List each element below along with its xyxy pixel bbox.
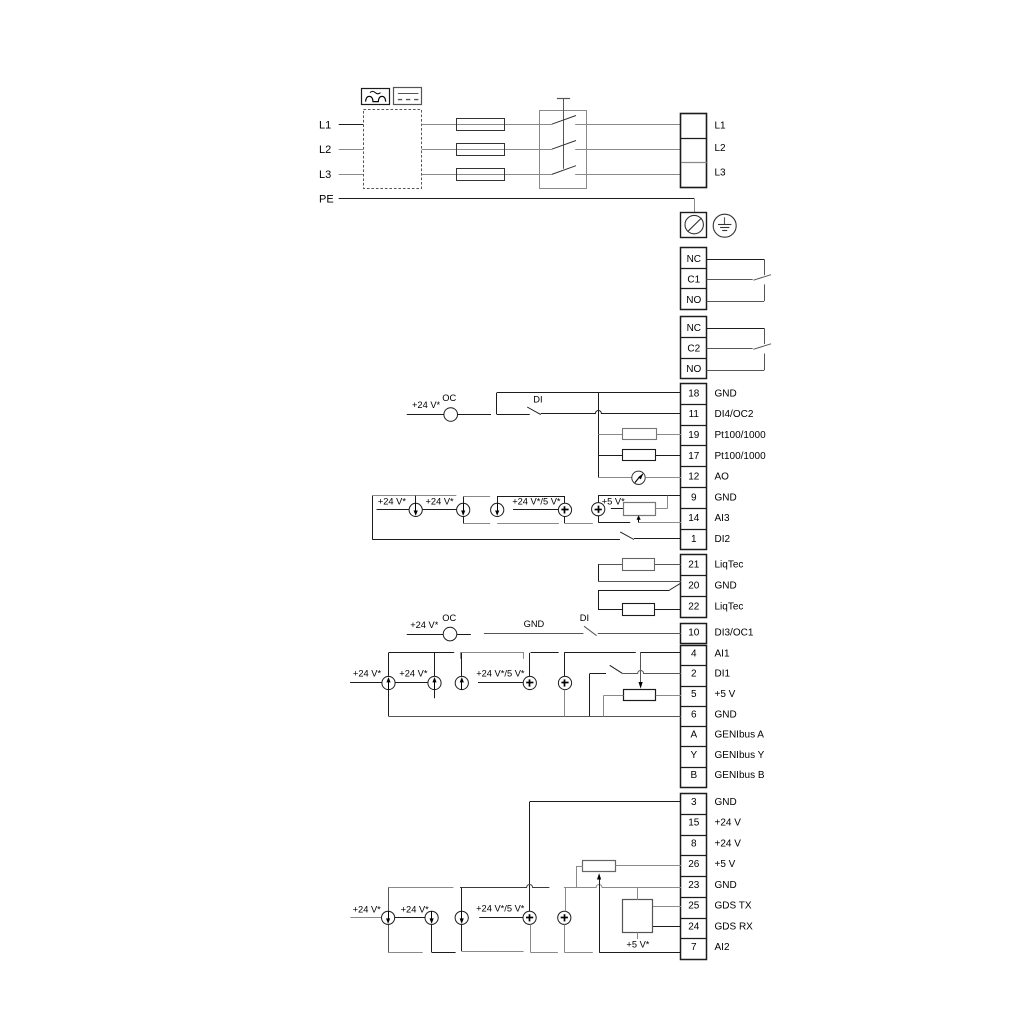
svg-text:+5 V*: +5 V* [602, 497, 625, 507]
svg-text:AO: AO [715, 472, 730, 483]
svg-text:L2: L2 [319, 144, 331, 156]
svg-text:L2: L2 [715, 143, 727, 154]
svg-text:OC: OC [442, 393, 456, 403]
svg-text:Pt100/1000: Pt100/1000 [715, 451, 767, 462]
svg-text:GND: GND [715, 388, 737, 399]
svg-text:+24 V*/5 V*: +24 V*/5 V* [476, 904, 525, 914]
svg-text:C2: C2 [687, 343, 700, 354]
svg-text:10: 10 [688, 628, 700, 639]
svg-text:C1: C1 [687, 274, 700, 285]
svg-text:GND: GND [524, 619, 545, 629]
svg-text:AI3: AI3 [715, 513, 730, 524]
svg-text:+5 V: +5 V [715, 859, 736, 870]
svg-text:+24 V*: +24 V* [410, 620, 439, 630]
svg-text:GENIbus A: GENIbus A [715, 730, 765, 741]
svg-text:15: 15 [688, 818, 700, 829]
svg-text:DI1: DI1 [715, 669, 731, 680]
svg-text:3: 3 [691, 797, 697, 808]
svg-text:21: 21 [688, 560, 700, 571]
svg-text:24: 24 [688, 921, 700, 932]
svg-text:L1: L1 [715, 120, 727, 131]
svg-text:9: 9 [691, 492, 697, 503]
svg-text:23: 23 [688, 880, 700, 891]
svg-text:+24 V*: +24 V* [353, 904, 382, 914]
svg-text:AI2: AI2 [715, 942, 730, 953]
svg-text:NO: NO [686, 295, 701, 306]
svg-text:GENIbus B: GENIbus B [715, 770, 765, 781]
svg-text:+24 V*: +24 V* [378, 496, 407, 506]
svg-text:5: 5 [691, 689, 697, 700]
svg-text:+5 V*: +5 V* [626, 940, 649, 950]
svg-text:7: 7 [691, 942, 697, 953]
svg-text:DI: DI [533, 394, 542, 404]
svg-text:+24 V*: +24 V* [399, 669, 428, 679]
svg-text:LiqTec: LiqTec [715, 601, 744, 612]
svg-text:A: A [690, 730, 697, 741]
svg-text:+24 V*: +24 V* [401, 904, 430, 914]
svg-text:GDS TX: GDS TX [715, 901, 752, 912]
svg-text:12: 12 [688, 472, 700, 483]
svg-text:+24 V*/5 V*: +24 V*/5 V* [476, 669, 525, 679]
svg-text:26: 26 [688, 859, 700, 870]
svg-text:11: 11 [689, 409, 700, 420]
svg-text:20: 20 [688, 581, 700, 592]
svg-text:DI3/OC1: DI3/OC1 [715, 628, 754, 639]
svg-text:DI2: DI2 [715, 534, 731, 545]
svg-text:AI1: AI1 [715, 648, 730, 659]
svg-text:DI4/OC2: DI4/OC2 [715, 409, 754, 420]
svg-text:NC: NC [687, 254, 701, 265]
svg-text:25: 25 [688, 901, 700, 912]
svg-text:+24 V*: +24 V* [353, 669, 382, 679]
svg-text:Y: Y [690, 750, 697, 761]
svg-text:L3: L3 [319, 169, 331, 181]
svg-text:PE: PE [319, 193, 334, 205]
svg-text:14: 14 [688, 513, 700, 524]
svg-text:NO: NO [686, 364, 701, 375]
svg-text:6: 6 [691, 709, 697, 720]
svg-text:OC: OC [442, 613, 456, 623]
svg-text:NC: NC [687, 323, 701, 334]
svg-text:1: 1 [691, 534, 697, 545]
svg-text:DI: DI [580, 613, 589, 623]
svg-text:LiqTec: LiqTec [715, 560, 744, 571]
svg-text:+24 V: +24 V [715, 818, 742, 829]
svg-text:GDS RX: GDS RX [715, 921, 754, 932]
svg-text:+5 V: +5 V [715, 689, 736, 700]
svg-text:8: 8 [691, 838, 697, 849]
svg-text:+24 V*: +24 V* [412, 400, 441, 410]
svg-text:L3: L3 [715, 168, 727, 179]
svg-text:+24 V: +24 V [715, 838, 742, 849]
svg-text:18: 18 [688, 388, 700, 399]
svg-text:GND: GND [715, 797, 737, 808]
svg-text:GND: GND [715, 492, 737, 503]
svg-text:4: 4 [691, 648, 697, 659]
svg-text:17: 17 [688, 451, 700, 462]
svg-text:B: B [690, 770, 697, 781]
svg-text:GND: GND [715, 709, 737, 720]
svg-text:Pt100/1000: Pt100/1000 [715, 430, 767, 441]
svg-text:19: 19 [688, 430, 700, 441]
svg-text:+24 V*: +24 V* [426, 496, 455, 506]
svg-text:GENIbus Y: GENIbus Y [715, 750, 765, 761]
svg-text:22: 22 [688, 601, 700, 612]
svg-text:GND: GND [715, 581, 737, 592]
svg-text:+24 V*/5 V*: +24 V*/5 V* [512, 496, 561, 506]
svg-text:GND: GND [715, 880, 737, 891]
svg-text:2: 2 [691, 669, 697, 680]
svg-text:L1: L1 [319, 119, 331, 131]
